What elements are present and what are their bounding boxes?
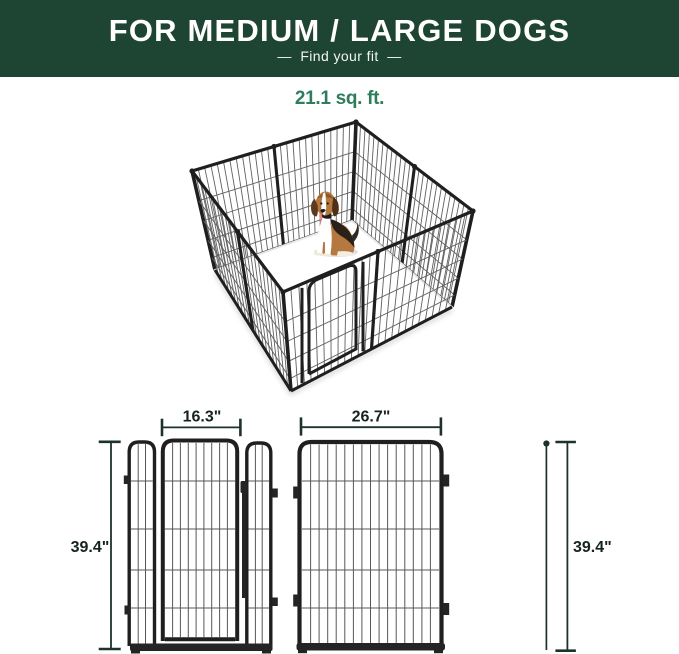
- svg-text:26.7": 26.7": [352, 409, 391, 426]
- svg-text:39.4": 39.4": [71, 539, 110, 556]
- svg-text:16.3": 16.3": [183, 409, 222, 426]
- svg-text:39.4": 39.4": [573, 539, 612, 556]
